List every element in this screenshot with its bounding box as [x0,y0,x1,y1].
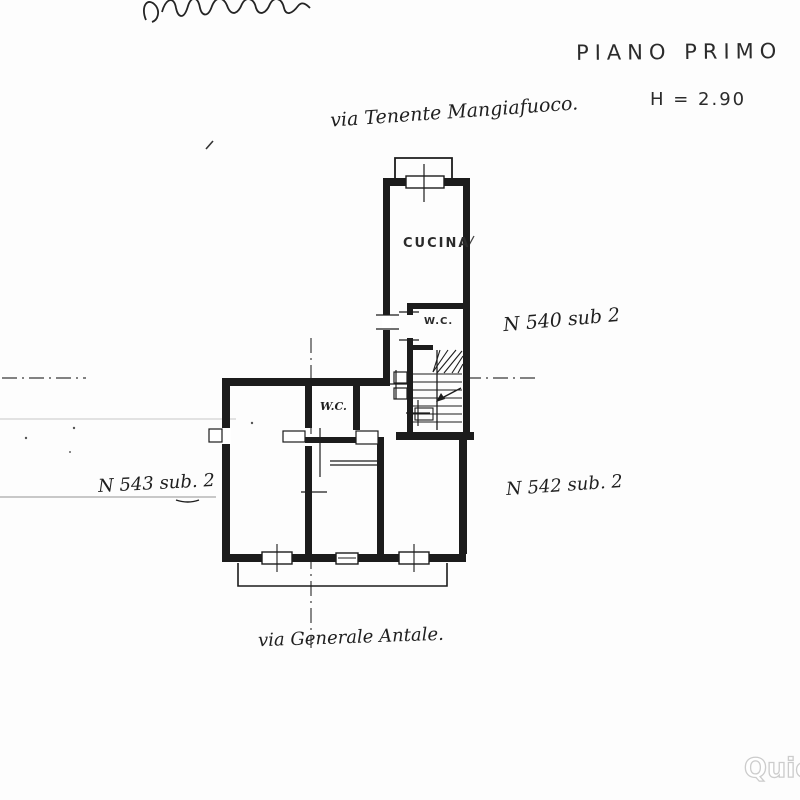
faint-scan-lines [0,141,474,497]
scanned-plan-page: PIANO PRIMO H = 2.90 via Tenente Mangiaf… [0,0,800,800]
detail-lines [176,164,430,572]
plan-title: PIANO PRIMO [576,39,782,65]
staircase [413,350,463,430]
room-label-wc-lower: W.C. [320,400,347,413]
watermark-logo: Quicè [744,753,800,784]
room-label-wc-upper: W.C. [424,316,453,327]
signature-scribble [144,0,310,22]
room-label-kitchen: CUCINA [403,236,470,251]
balcony-outlines [238,158,452,586]
height-label: H = 2.90 [650,89,746,110]
